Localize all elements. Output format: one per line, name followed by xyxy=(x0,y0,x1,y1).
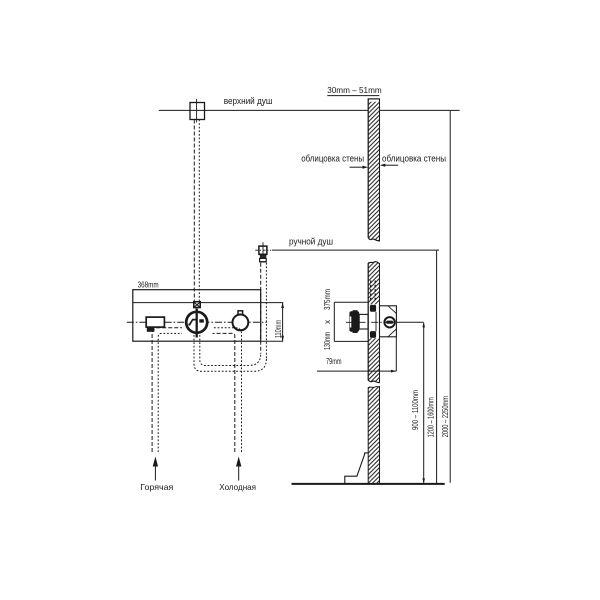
svg-text:Холодная: Холодная xyxy=(219,482,256,492)
svg-text:130mm: 130mm xyxy=(323,332,332,350)
svg-text:верхний душ: верхний душ xyxy=(224,96,273,106)
svg-text:x: x xyxy=(323,320,332,324)
svg-text:30mm – 51mm: 30mm – 51mm xyxy=(327,85,382,95)
svg-text:110mm: 110mm xyxy=(274,320,283,338)
svg-text:900 – 1100mm: 900 – 1100mm xyxy=(411,390,420,430)
svg-text:ручной душ: ручной душ xyxy=(289,236,333,246)
svg-text:368mm: 368mm xyxy=(138,281,159,290)
svg-text:79mm: 79mm xyxy=(326,357,342,366)
svg-text:Горячая: Горячая xyxy=(140,482,173,492)
svg-text:облицовка стены: облицовка стены xyxy=(382,154,446,164)
svg-text:облицовка стены: облицовка стены xyxy=(301,154,364,164)
svg-text:375mm: 375mm xyxy=(323,289,332,310)
svg-text:1200 – 1600mm: 1200 – 1600mm xyxy=(426,397,435,437)
svg-text:2000 – 2250mm: 2000 – 2250mm xyxy=(441,396,450,437)
